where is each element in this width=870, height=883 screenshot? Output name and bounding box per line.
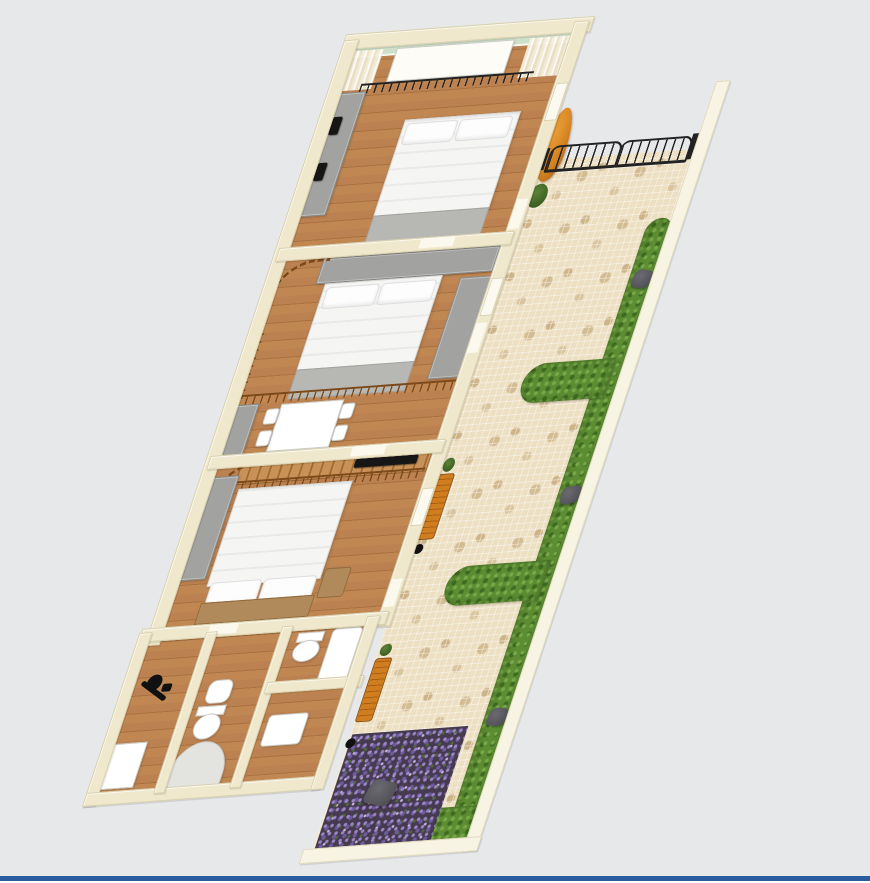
window-bottom-border — [0, 876, 870, 881]
floorplan-3d-view[interactable] — [0, 0, 870, 876]
render-viewport — [0, 0, 870, 883]
